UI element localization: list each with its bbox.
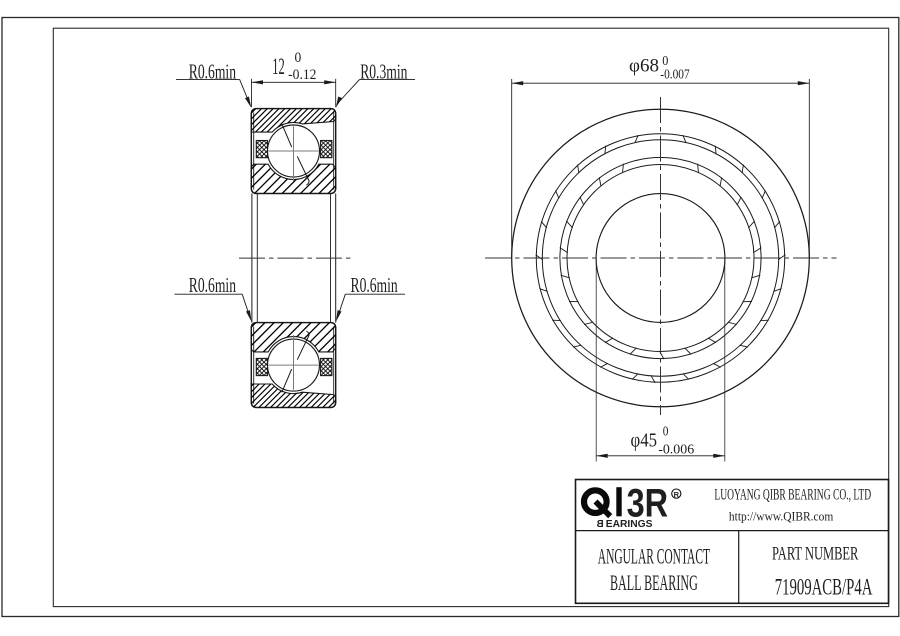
svg-text:12: 12: [272, 54, 285, 79]
svg-text:φ68: φ68: [629, 56, 659, 77]
svg-text:0: 0: [295, 50, 302, 66]
svg-text:R0.6min: R0.6min: [189, 273, 236, 297]
svg-text:BALL BEARING: BALL BEARING: [610, 571, 698, 595]
svg-text:-0.12: -0.12: [288, 67, 316, 83]
svg-text:B: B: [597, 519, 604, 530]
svg-text:0: 0: [663, 424, 669, 439]
svg-text:R: R: [674, 490, 680, 499]
svg-text:LUOYANG QIBR BEARING CO., LTD: LUOYANG QIBR BEARING CO., LTD: [714, 486, 871, 503]
svg-text:R0.6min: R0.6min: [351, 273, 398, 297]
svg-text:-0.007: -0.007: [660, 67, 689, 82]
svg-text:EARINGS: EARINGS: [606, 519, 653, 530]
svg-text:-0.006: -0.006: [658, 442, 694, 457]
svg-text:φ45: φ45: [631, 429, 658, 451]
svg-text:ANGULAR CONTACT: ANGULAR CONTACT: [598, 544, 710, 568]
svg-text:71909ACB/P4A: 71909ACB/P4A: [775, 574, 873, 599]
svg-text:R0.6min: R0.6min: [189, 60, 236, 84]
svg-text:R0.3min: R0.3min: [360, 60, 407, 84]
svg-text:PART NUMBER: PART NUMBER: [772, 544, 859, 565]
svg-text:http://www.QIBR.com: http://www.QIBR.com: [729, 510, 834, 524]
